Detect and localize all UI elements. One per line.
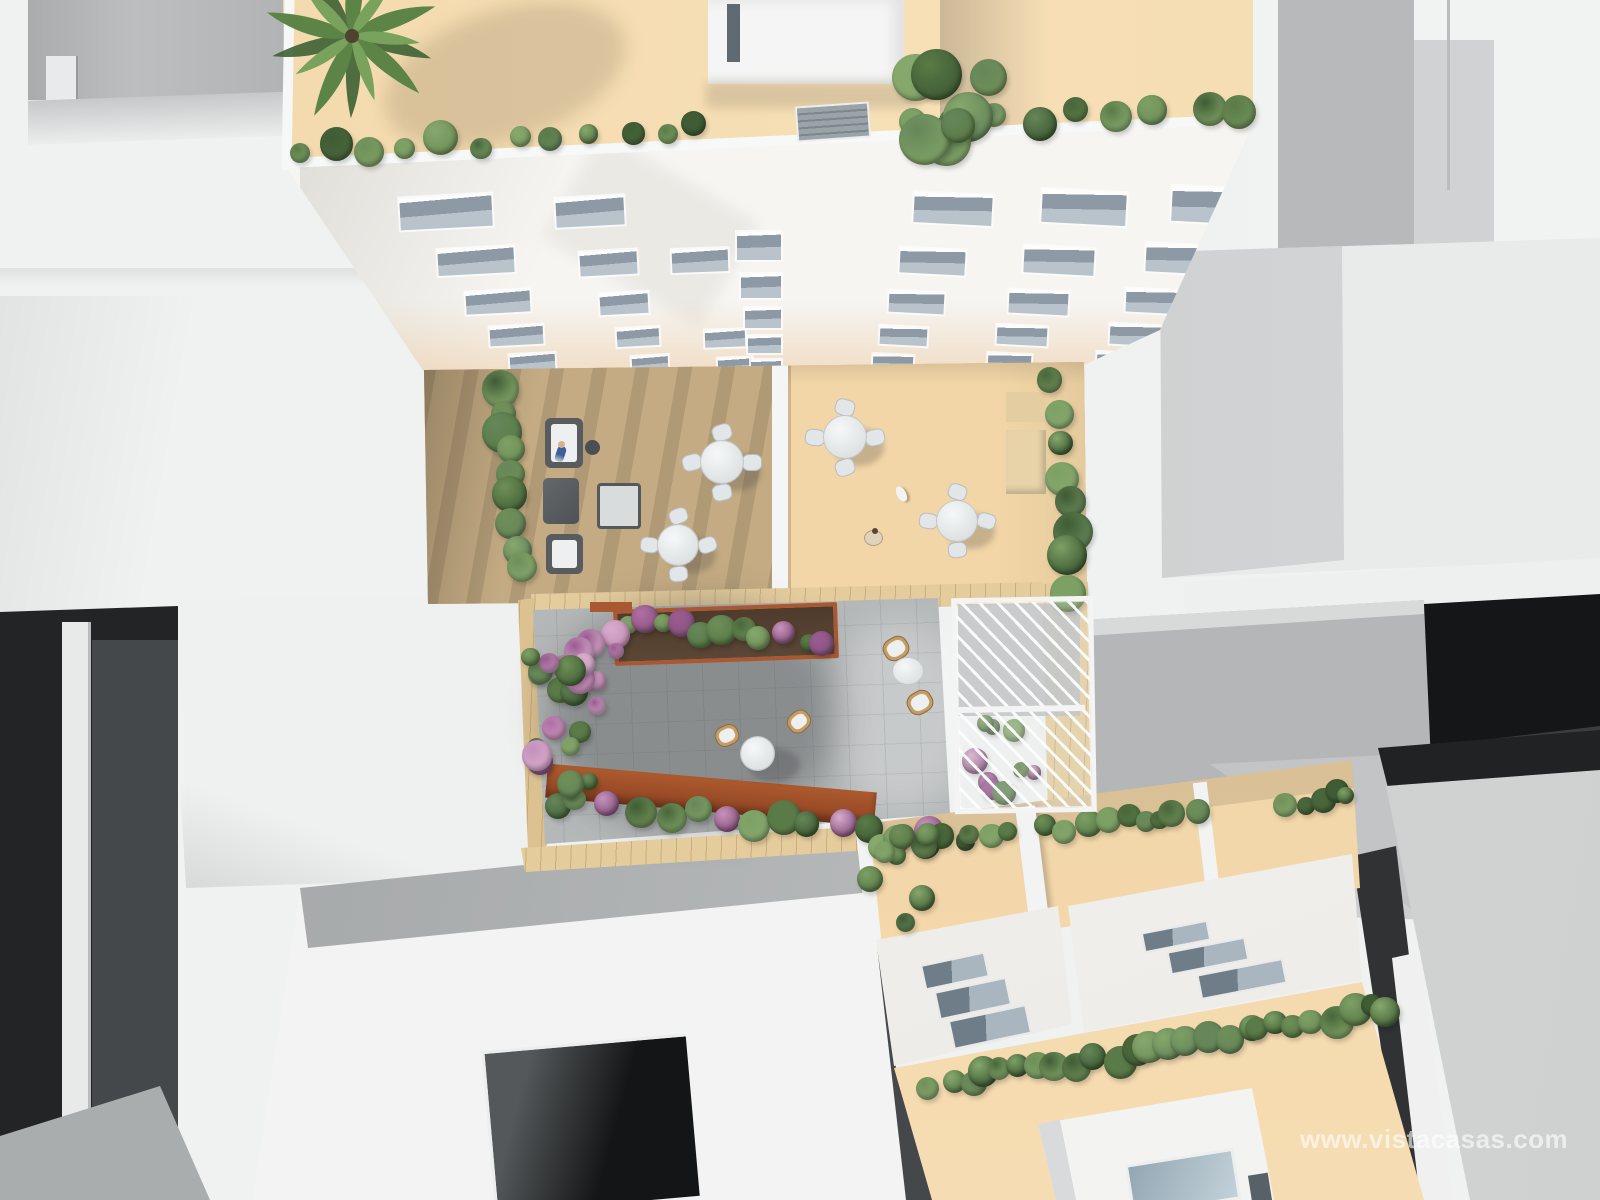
bistro-chair (713, 722, 741, 749)
chair (669, 566, 687, 582)
chair-cushion (908, 692, 931, 714)
chair (711, 422, 732, 441)
ottoman (543, 478, 579, 524)
chair (834, 398, 855, 417)
watermark: www.vistacasas.com (1300, 1124, 1560, 1155)
bistro-chair (784, 707, 813, 736)
patio-table (893, 658, 923, 684)
chair (668, 507, 689, 526)
aerial-architectural-render: www.vistacasas.com (0, 0, 1600, 1200)
chair (948, 542, 966, 558)
sofa (546, 534, 583, 574)
chair (805, 429, 824, 446)
side-table (585, 440, 600, 455)
round-table (937, 501, 977, 541)
chair (682, 453, 703, 472)
patio-chair (904, 687, 935, 717)
sofa-cushions (552, 540, 577, 568)
chair (743, 455, 761, 470)
chair (947, 483, 968, 502)
coffee-table (597, 483, 641, 529)
round-table (658, 525, 698, 565)
chair (919, 513, 938, 529)
chair (640, 537, 659, 553)
round-table (824, 416, 866, 458)
person-head (558, 441, 565, 448)
furniture-layer (0, 0, 1600, 1200)
round-table (701, 441, 743, 483)
palm-tree-icon (252, 0, 452, 132)
chair-cushion (717, 726, 737, 745)
dog (894, 485, 909, 503)
person-head (872, 528, 878, 534)
chair-cushion (789, 711, 810, 731)
chair (712, 483, 732, 501)
chair-cushion (884, 638, 907, 660)
bistro-table (741, 737, 774, 770)
